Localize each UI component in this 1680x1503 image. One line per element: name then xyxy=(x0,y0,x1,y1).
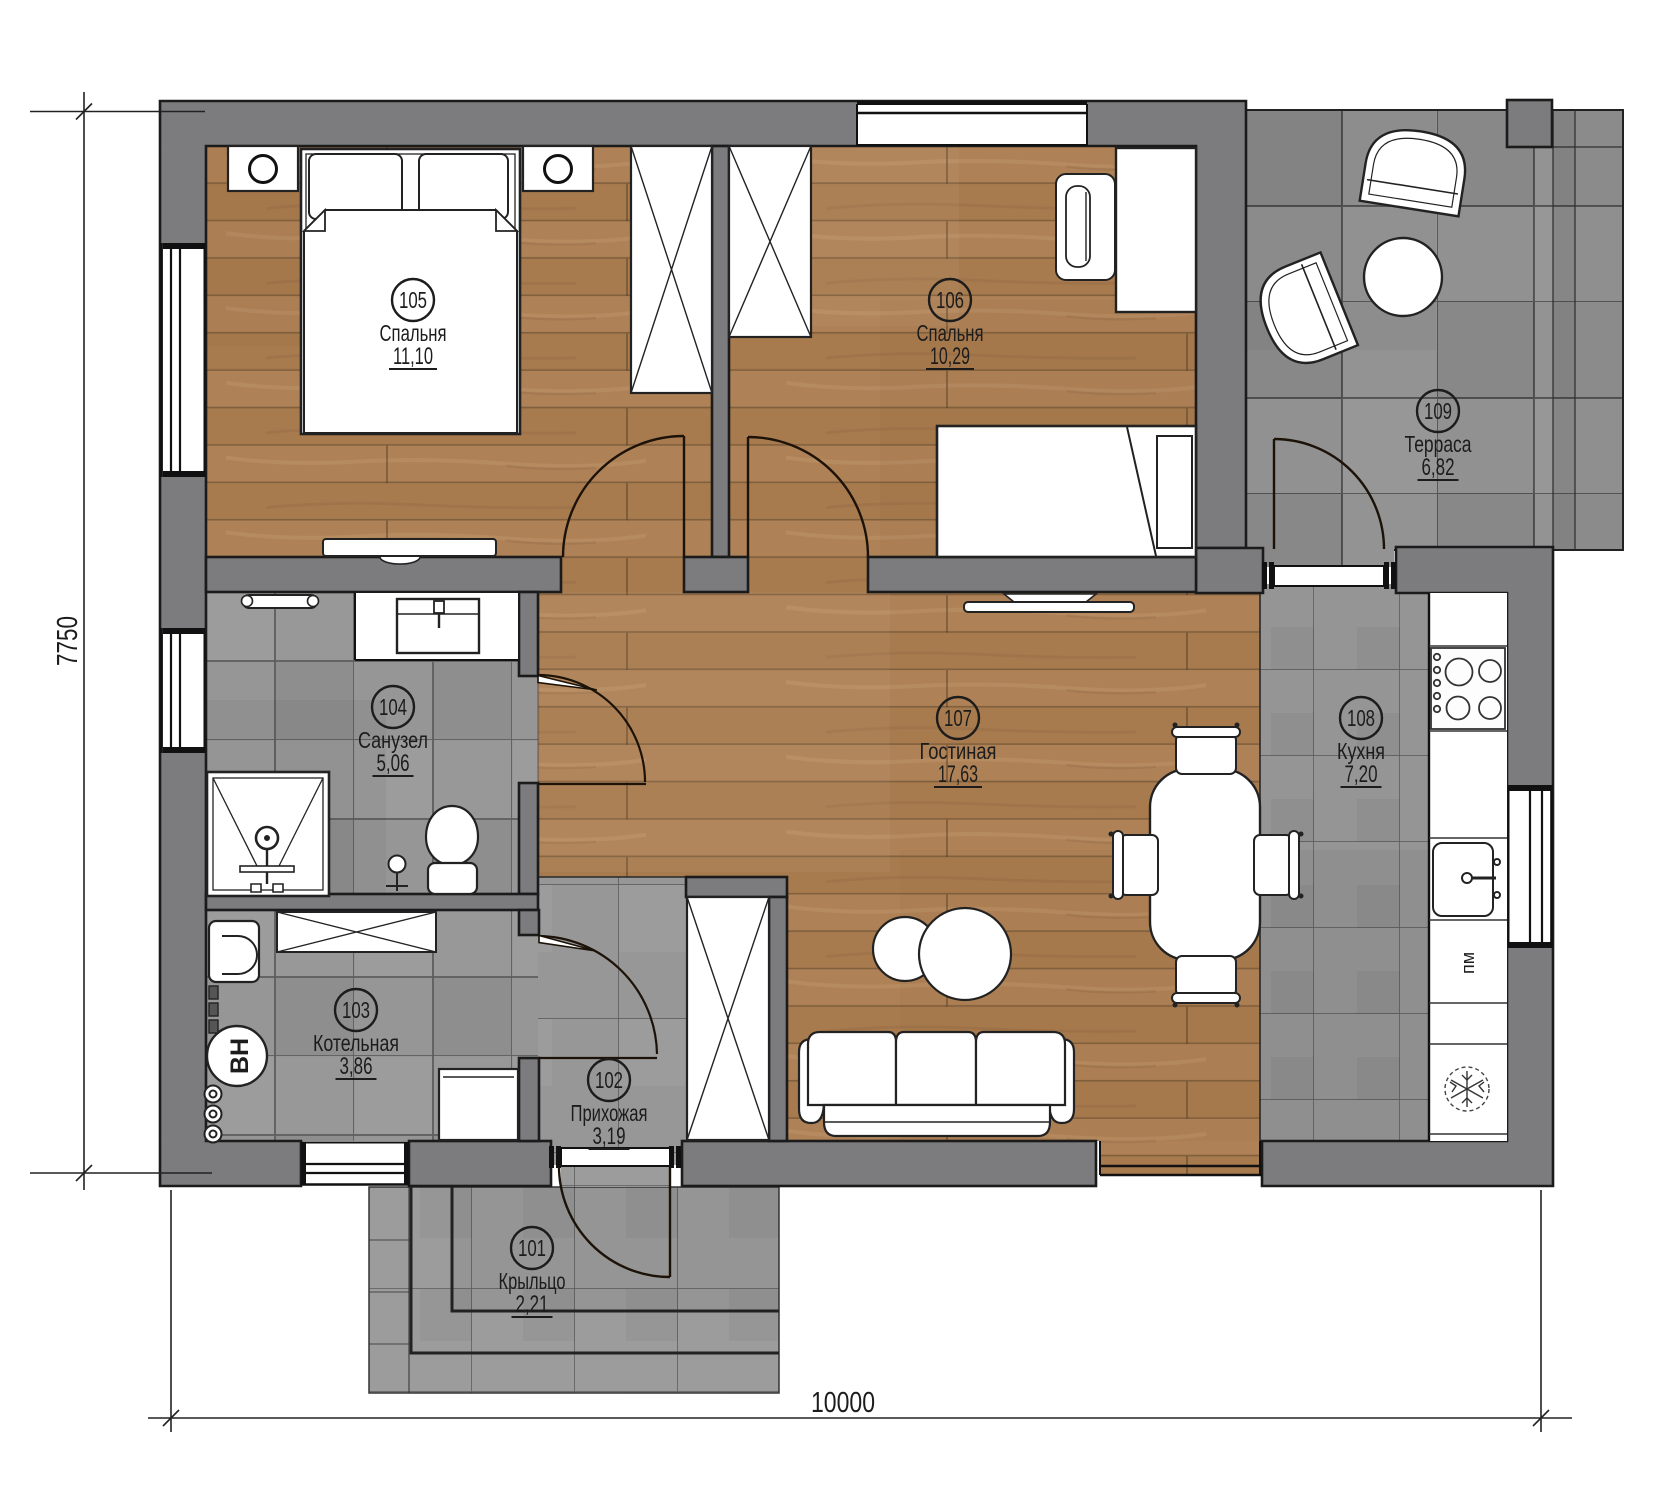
svg-text:10000: 10000 xyxy=(811,1387,875,1419)
svg-text:109: 109 xyxy=(1424,398,1452,424)
svg-text:103: 103 xyxy=(342,997,370,1023)
svg-text:11,10: 11,10 xyxy=(393,343,433,370)
svg-text:105: 105 xyxy=(399,287,427,313)
svg-text:2,21: 2,21 xyxy=(516,1291,549,1318)
svg-text:102: 102 xyxy=(595,1067,623,1093)
svg-text:108: 108 xyxy=(1347,705,1375,731)
svg-text:3,19: 3,19 xyxy=(593,1123,626,1150)
svg-text:7,20: 7,20 xyxy=(1345,761,1378,788)
svg-text:107: 107 xyxy=(944,705,972,731)
svg-text:10,29: 10,29 xyxy=(930,343,970,370)
svg-text:17,63: 17,63 xyxy=(938,761,978,788)
svg-text:101: 101 xyxy=(518,1235,546,1261)
svg-text:ВН: ВН xyxy=(226,1038,254,1074)
svg-text:7750: 7750 xyxy=(52,616,84,666)
svg-text:6,82: 6,82 xyxy=(1422,454,1455,481)
svg-text:5,06: 5,06 xyxy=(377,750,410,777)
svg-text:3,86: 3,86 xyxy=(340,1053,373,1080)
svg-text:104: 104 xyxy=(379,694,407,720)
svg-text:106: 106 xyxy=(936,287,964,313)
svg-text:пм: пм xyxy=(1458,952,1478,974)
